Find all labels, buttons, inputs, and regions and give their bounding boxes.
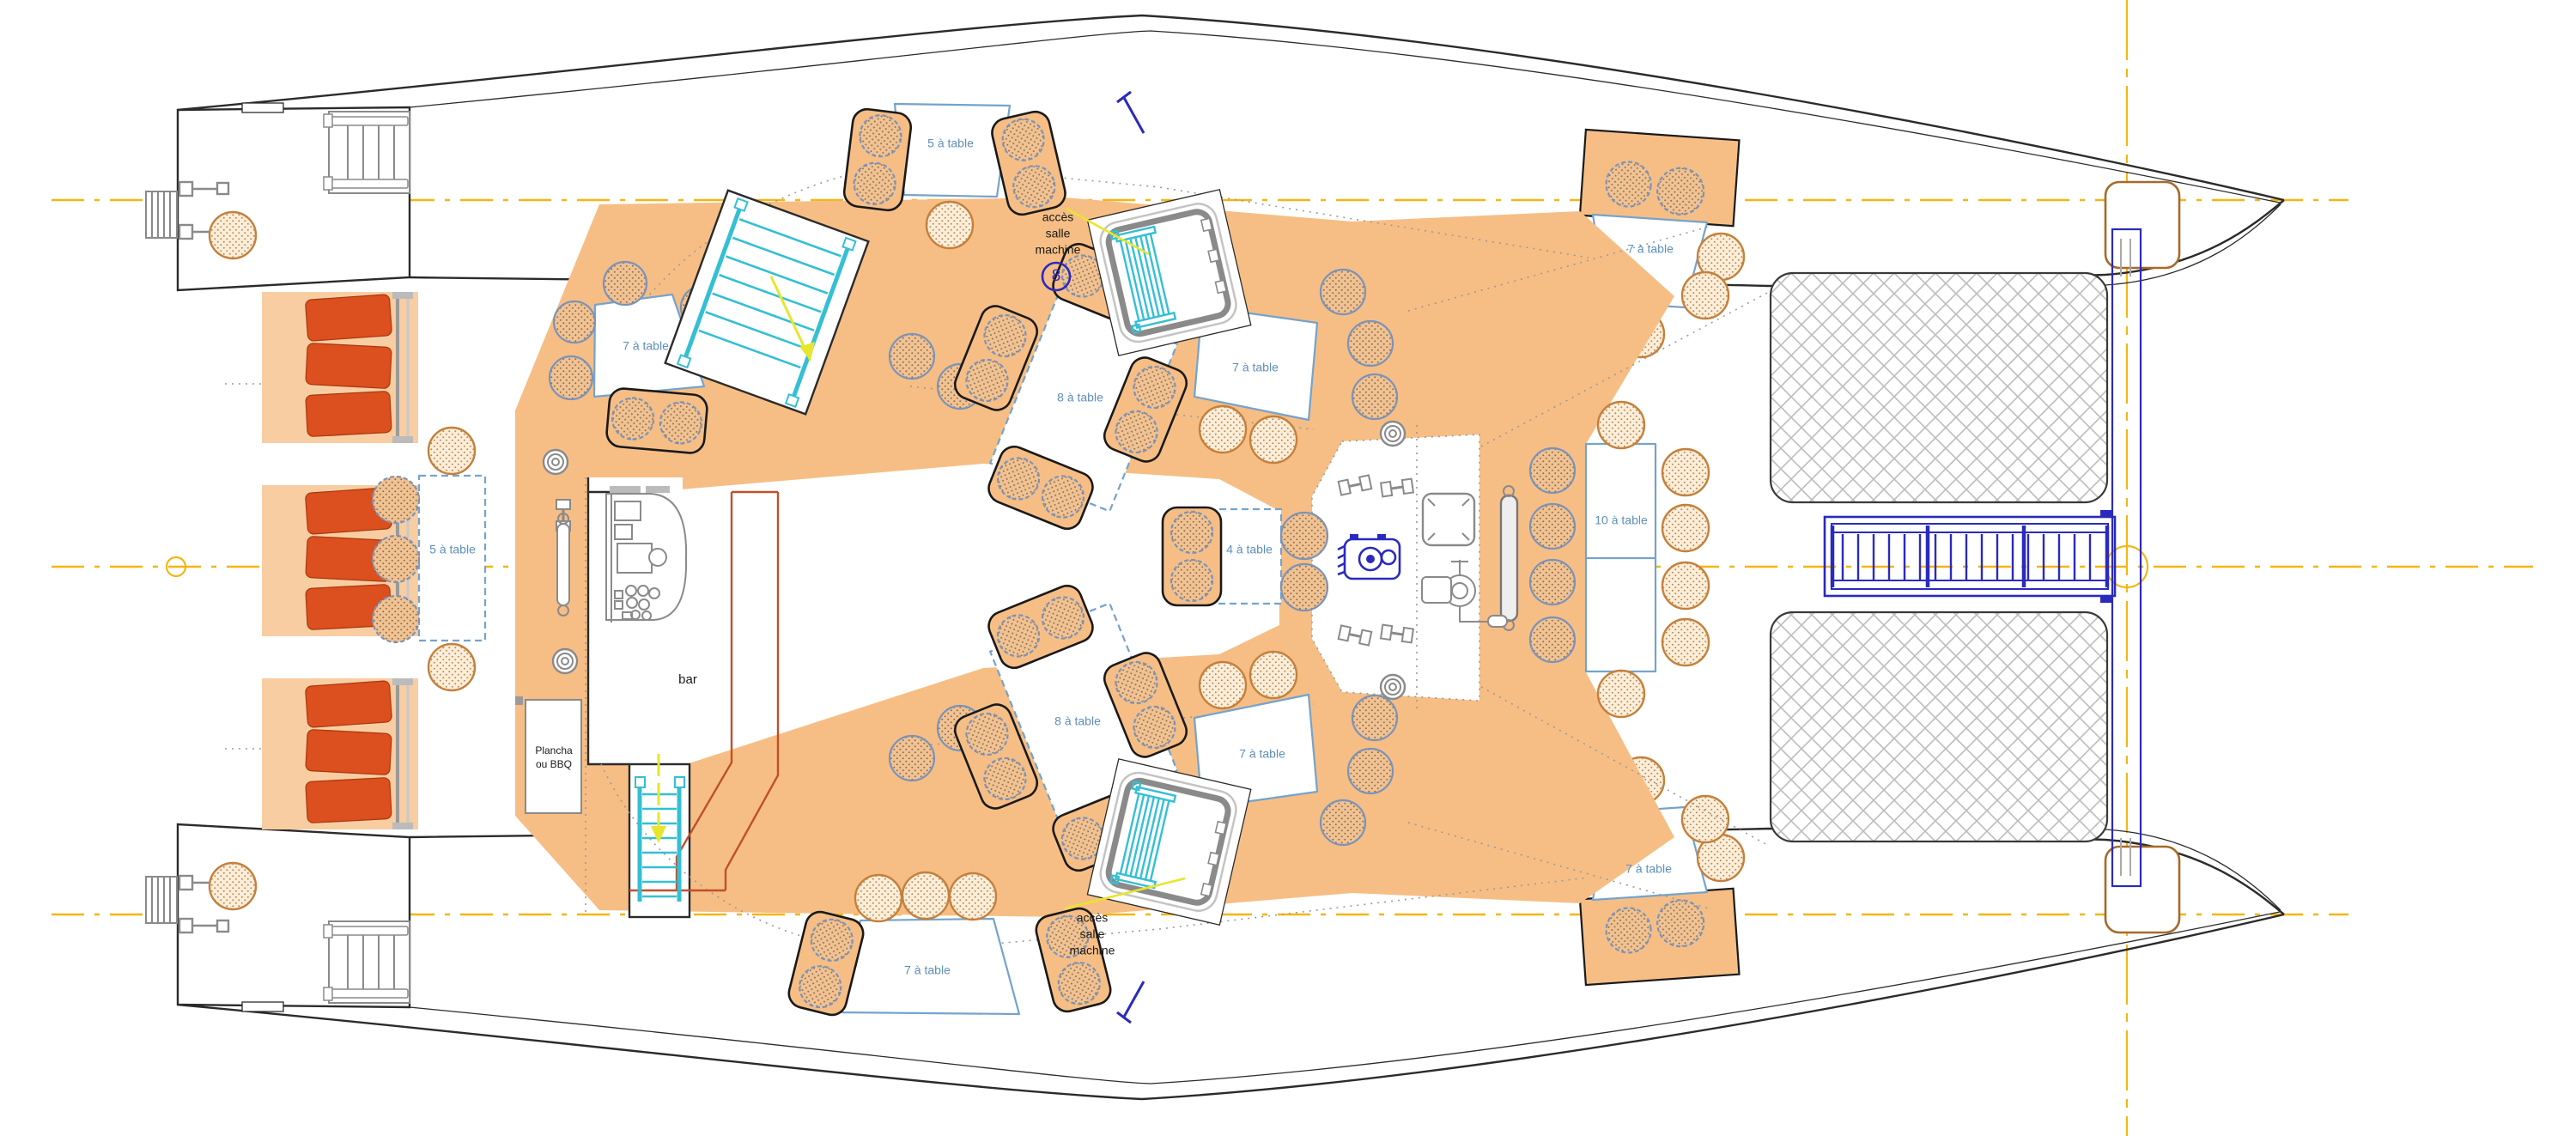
deck-plan: 5 à table 5 à table 7 à table 8 à table … [0,0,2576,1136]
table-label-7-bottom-right: 7 à table [1625,861,1672,878]
engine-access-label-bottom: accès salle machine [1070,910,1115,959]
table-label-7-bottom: 7 à table [904,963,951,979]
table-label-7-top-right: 7 à table [1627,241,1674,258]
table-label-5-top: 5 à table [927,136,974,152]
table-label-7-upper-center: 7 à table [1232,360,1279,376]
dining-center-4 [1163,507,1327,611]
left-lounge [210,212,485,909]
table-label-4-center: 4 à table [1226,542,1273,558]
windlass [1338,534,1400,579]
table-label-7-top-left: 7 à table [623,338,669,355]
plancha-label: Plancha ou BBQ [535,744,572,771]
circled-8-label: 8 [1052,265,1061,288]
table-label-8-lower: 8 à table [1054,714,1101,730]
bar-counter [606,486,686,623]
table-label-10-right: 10 à table [1595,513,1648,529]
bar-label: bar [678,671,697,689]
engine-access-label-top: accès salle machine [1036,210,1081,258]
sun-bed [262,292,418,443]
deck-plan-drawing [0,0,2576,1136]
table-5-left [419,476,485,641]
table-label-5-left: 5 à table [429,542,476,558]
table-label-8-upper: 8 à table [1057,390,1103,406]
sun-bed [262,678,418,829]
table-label-7-lower-center: 7 à table [1239,746,1285,762]
